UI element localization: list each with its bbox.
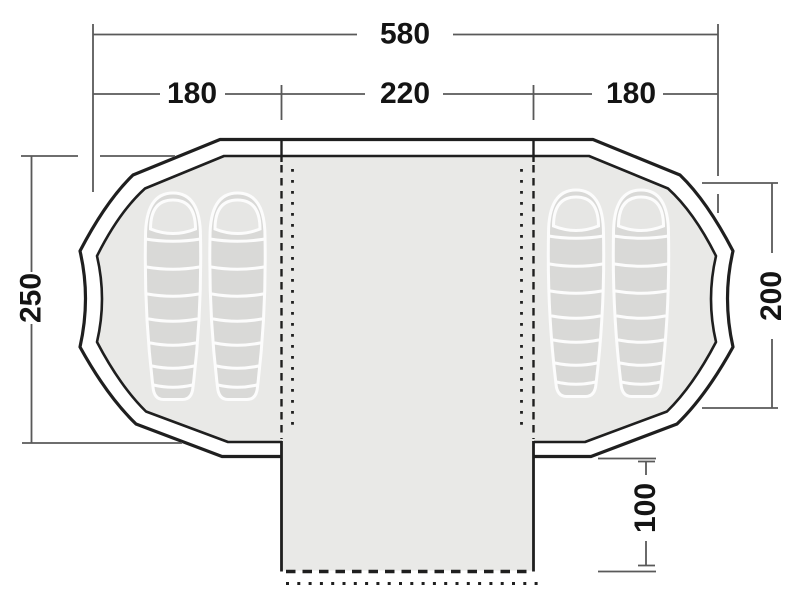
tent-floorplan-diagram: 580 180 220 180 250 200 100 bbox=[0, 0, 800, 595]
sleeping-bag-right-2 bbox=[613, 190, 668, 397]
front-extension-floor bbox=[282, 425, 534, 571]
sleeping-bag-left-1 bbox=[145, 193, 200, 400]
dim-extension-depth: 100 bbox=[598, 459, 662, 572]
tent-floorplan-page: 580 180 220 180 250 200 100 bbox=[0, 0, 800, 595]
dim-section-widths: 180 220 180 bbox=[93, 77, 718, 120]
sleeping-bag-left-2 bbox=[210, 193, 265, 400]
dim-label-center-width: 220 bbox=[380, 77, 430, 110]
dim-label-overall-width: 580 bbox=[380, 18, 430, 51]
dim-label-cabin-depth: 200 bbox=[755, 271, 788, 321]
dim-label-left-cabin-width: 180 bbox=[167, 77, 217, 110]
dim-label-overall-depth: 250 bbox=[15, 273, 48, 323]
sleeping-bag-right-1 bbox=[548, 190, 603, 397]
dim-label-right-cabin-width: 180 bbox=[606, 77, 656, 110]
dim-label-extension-depth: 100 bbox=[629, 483, 662, 533]
